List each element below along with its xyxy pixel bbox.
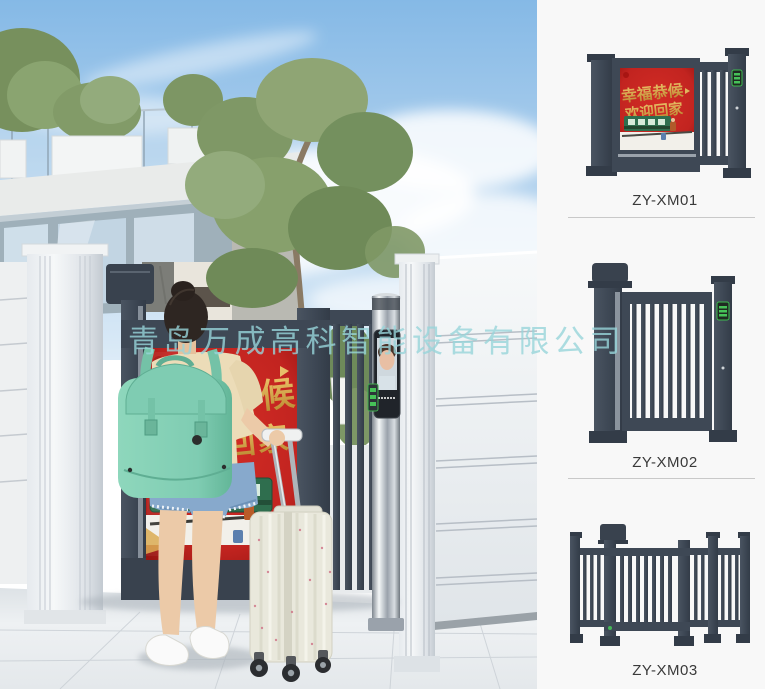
product-showcase: 幸福恭候 欢迎回家 <box>0 0 765 689</box>
access-control-pillar <box>368 293 404 631</box>
product-list-panel: 幸福恭候 欢迎回家 <box>537 0 765 689</box>
gate-zy-xm01: 幸福恭候 欢迎回家 <box>586 48 751 178</box>
product-model-zy-xm03: ZY-XM03 <box>557 662 765 679</box>
product-thumbnail-zy-xm02 <box>588 260 739 446</box>
hero-photo: 幸福恭候 欢迎回家 <box>0 0 537 689</box>
divider-2 <box>568 478 755 479</box>
product-thumbnail-zy-xm03 <box>570 522 750 652</box>
product-thumbnail-zy-xm01: 幸福恭候 欢迎回家 <box>584 46 752 180</box>
product-model-zy-xm01: ZY-XM01 <box>557 192 765 209</box>
gate-zy-xm03 <box>570 524 750 646</box>
left-ribbed-pillar <box>22 244 108 624</box>
right-wall <box>434 252 537 630</box>
right-ribbed-pillar <box>394 254 440 672</box>
hand <box>269 430 285 446</box>
motor-box-zy-xm03 <box>600 524 626 542</box>
left-wall <box>0 262 28 584</box>
gate-zy-xm02 <box>588 263 737 443</box>
divider-1 <box>568 217 755 218</box>
gate-motor-box <box>106 264 154 304</box>
motor-box-zy-xm02 <box>592 263 628 283</box>
product-model-zy-xm02: ZY-XM02 <box>557 454 765 471</box>
scene-illustration: 幸福恭候 欢迎回家 <box>0 0 537 689</box>
